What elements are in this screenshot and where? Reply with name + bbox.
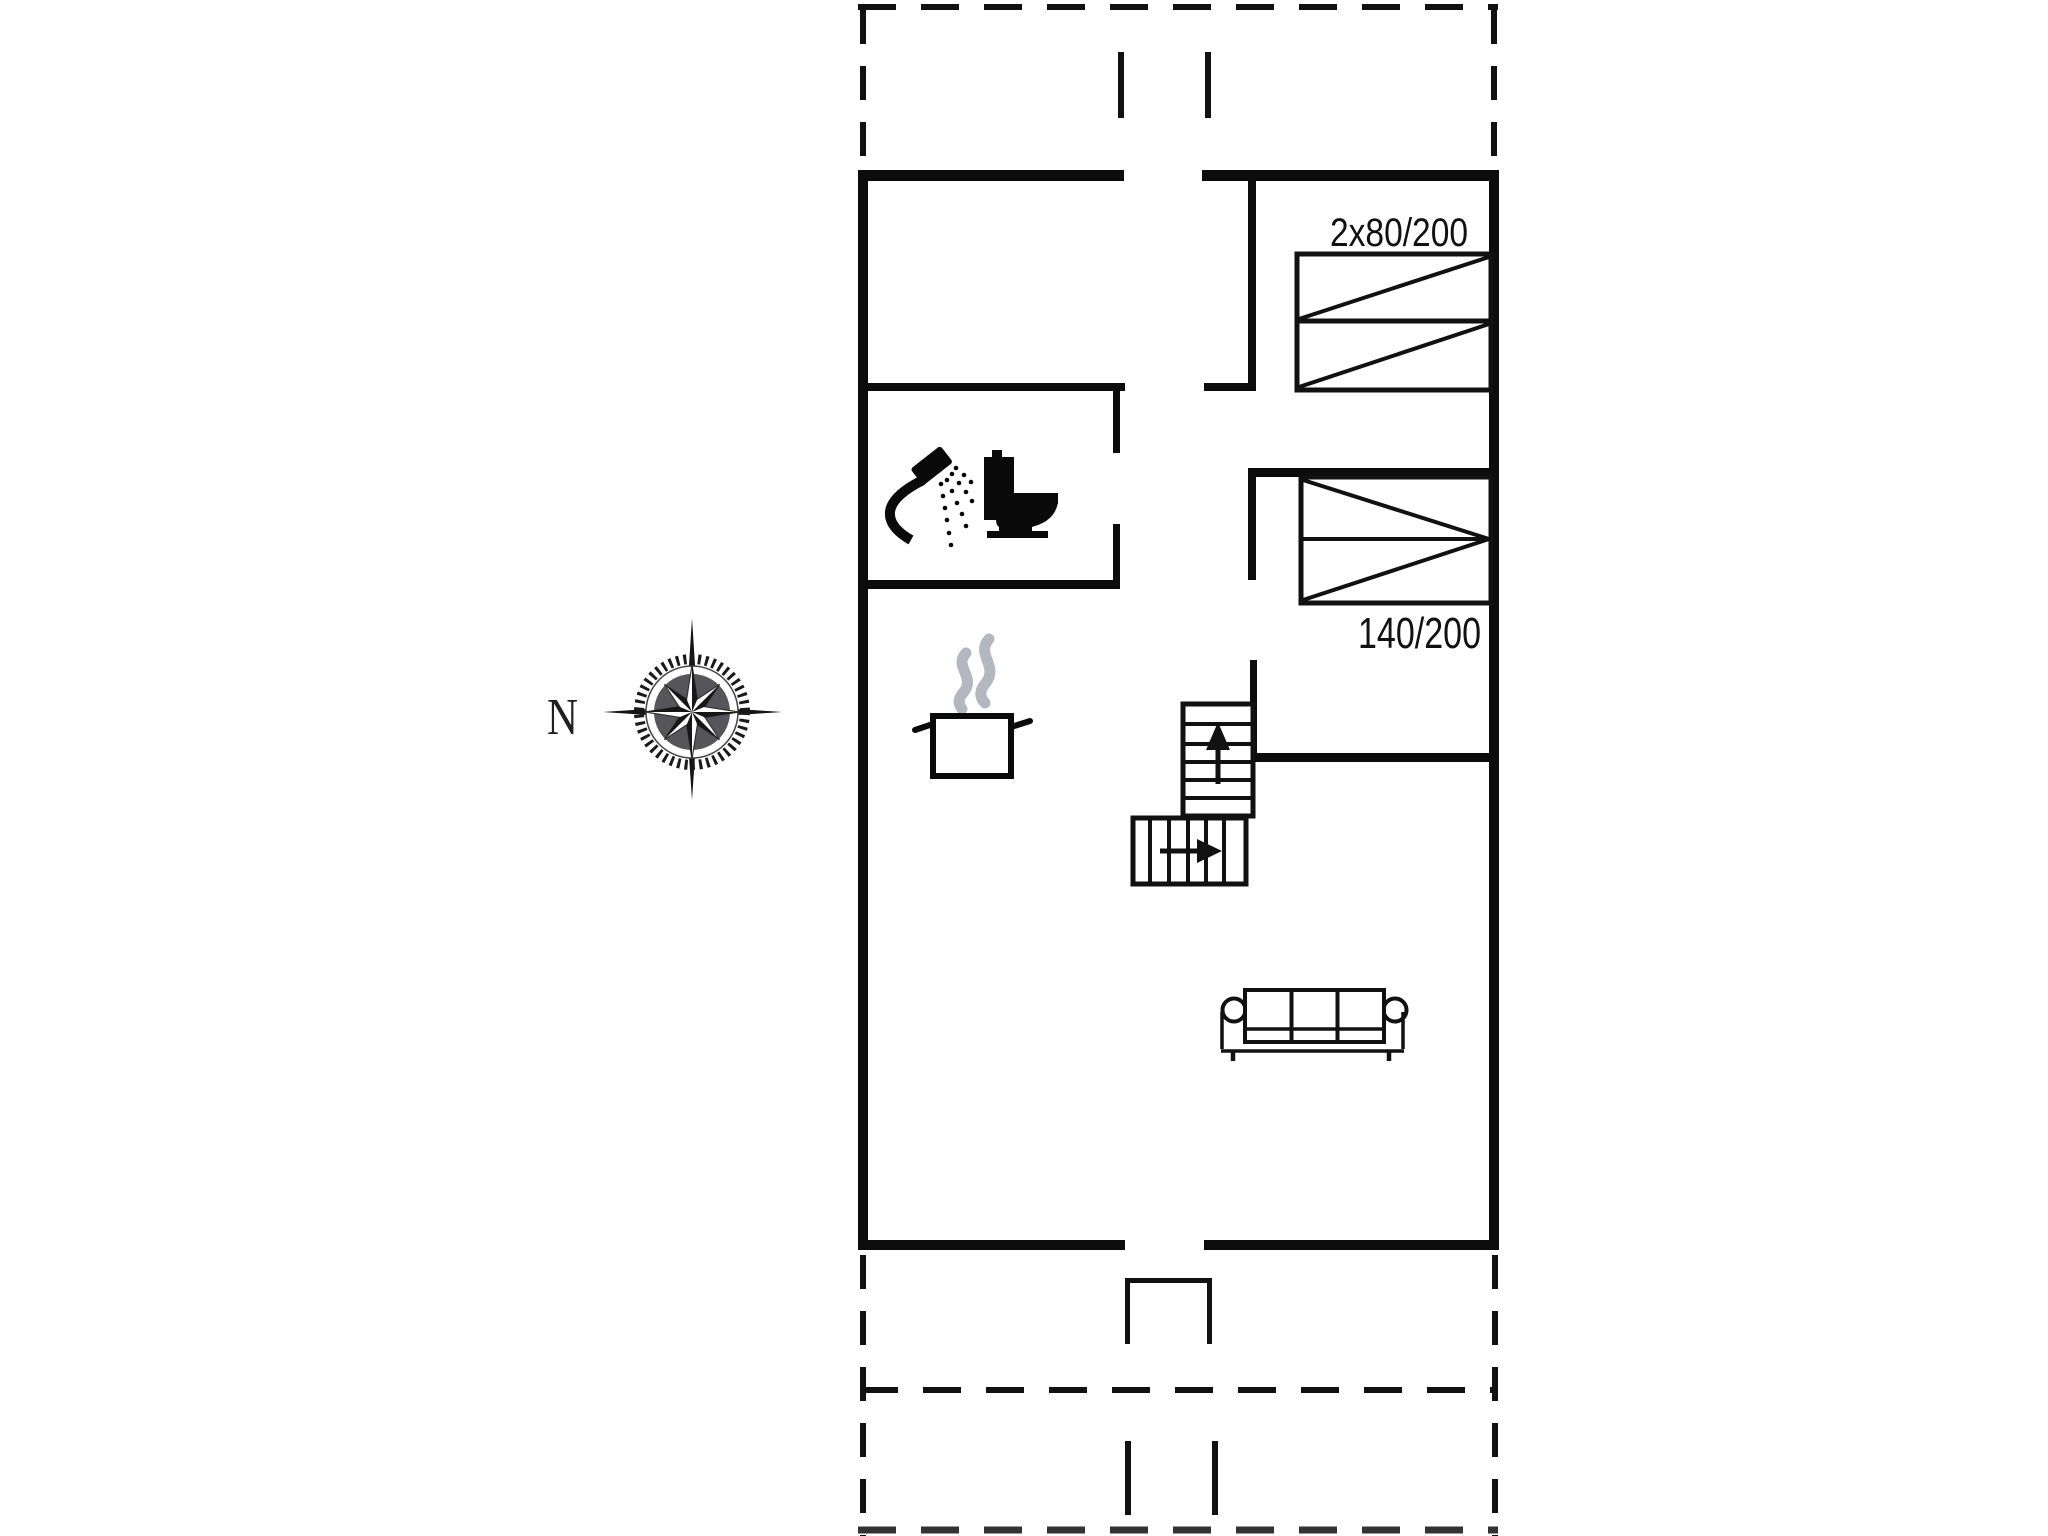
svg-text:2x80/200: 2x80/200 xyxy=(1330,211,1468,255)
svg-text:N: N xyxy=(547,689,578,746)
svg-text:140/200: 140/200 xyxy=(1358,609,1481,658)
